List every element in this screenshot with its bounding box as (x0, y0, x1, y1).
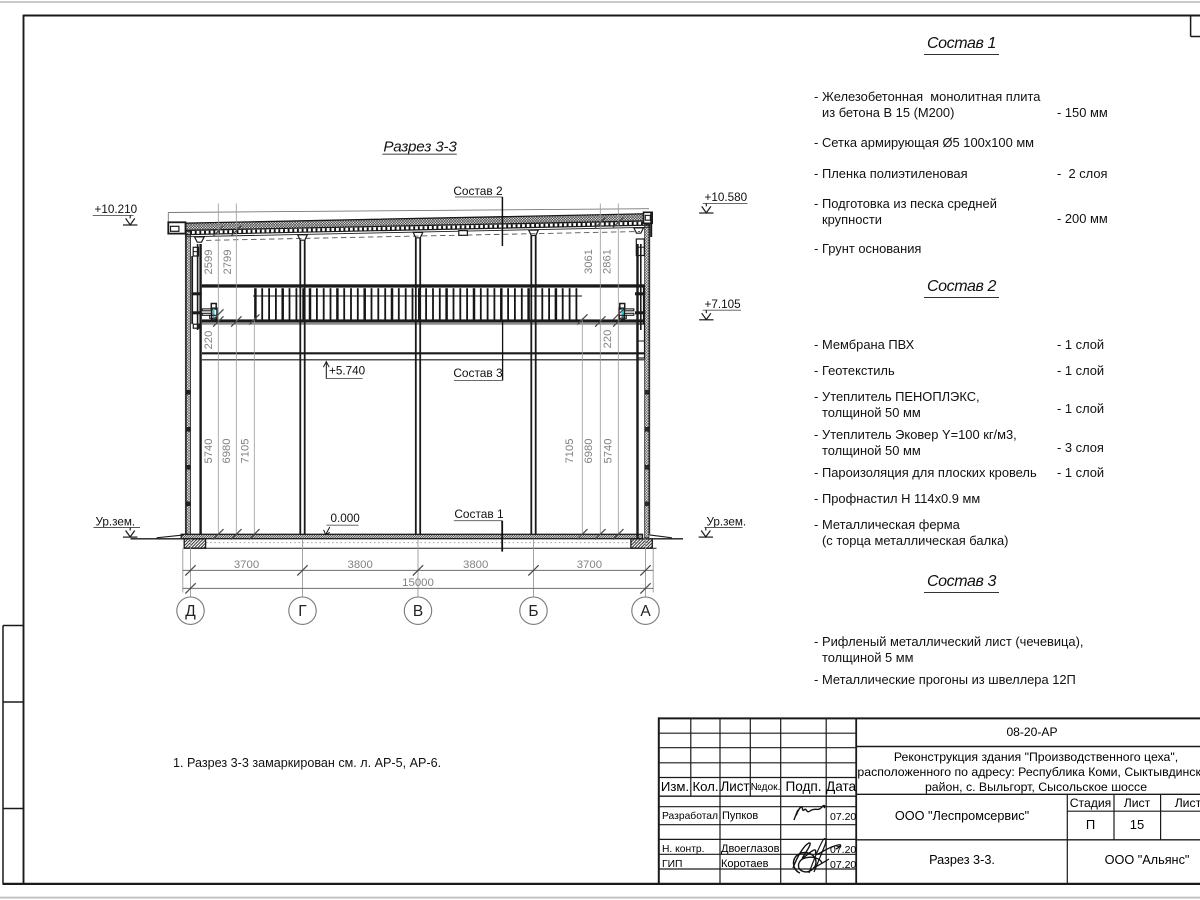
svg-text:Состав 1: Состав 1 (454, 507, 504, 521)
svg-text:+5.740: +5.740 (329, 365, 366, 378)
svg-text:220: 220 (203, 331, 215, 350)
svg-text:7105: 7105 (240, 439, 252, 464)
svg-text:А: А (640, 603, 651, 620)
svg-text:Состав 2: Состав 2 (453, 184, 503, 198)
svg-text:Б: Б (528, 603, 538, 620)
svg-text:15000: 15000 (402, 577, 434, 589)
svg-text:5740: 5740 (602, 439, 614, 464)
svg-text:2599: 2599 (203, 250, 215, 275)
svg-text:3800: 3800 (348, 559, 373, 571)
svg-text:В: В (413, 603, 423, 620)
svg-text:3061: 3061 (583, 249, 595, 274)
svg-text:+10.210: +10.210 (95, 203, 138, 216)
svg-text:0.000: 0.000 (331, 512, 361, 525)
svg-text:+7.105: +7.105 (705, 298, 742, 311)
svg-text:3800: 3800 (463, 559, 488, 571)
svg-text:Г: Г (298, 603, 307, 620)
svg-text:Ур.зем.: Ур.зем. (707, 515, 747, 528)
svg-text:2799: 2799 (222, 250, 234, 275)
svg-text:6980: 6980 (583, 439, 595, 464)
svg-text:Разрез 3-3: Разрез 3-3 (383, 138, 457, 155)
svg-text:Состав 3: Состав 3 (453, 366, 503, 380)
svg-text:7105: 7105 (564, 439, 576, 464)
svg-text:3700: 3700 (234, 559, 259, 571)
svg-text:Д: Д (185, 603, 196, 620)
svg-text:220: 220 (602, 330, 614, 349)
svg-text:2861: 2861 (602, 249, 614, 274)
svg-text:5740: 5740 (203, 439, 215, 464)
svg-text:3700: 3700 (577, 559, 602, 571)
svg-text:6980: 6980 (221, 439, 233, 464)
svg-text:Ур.зем.: Ур.зем. (96, 515, 136, 528)
svg-text:+10.580: +10.580 (705, 191, 748, 204)
